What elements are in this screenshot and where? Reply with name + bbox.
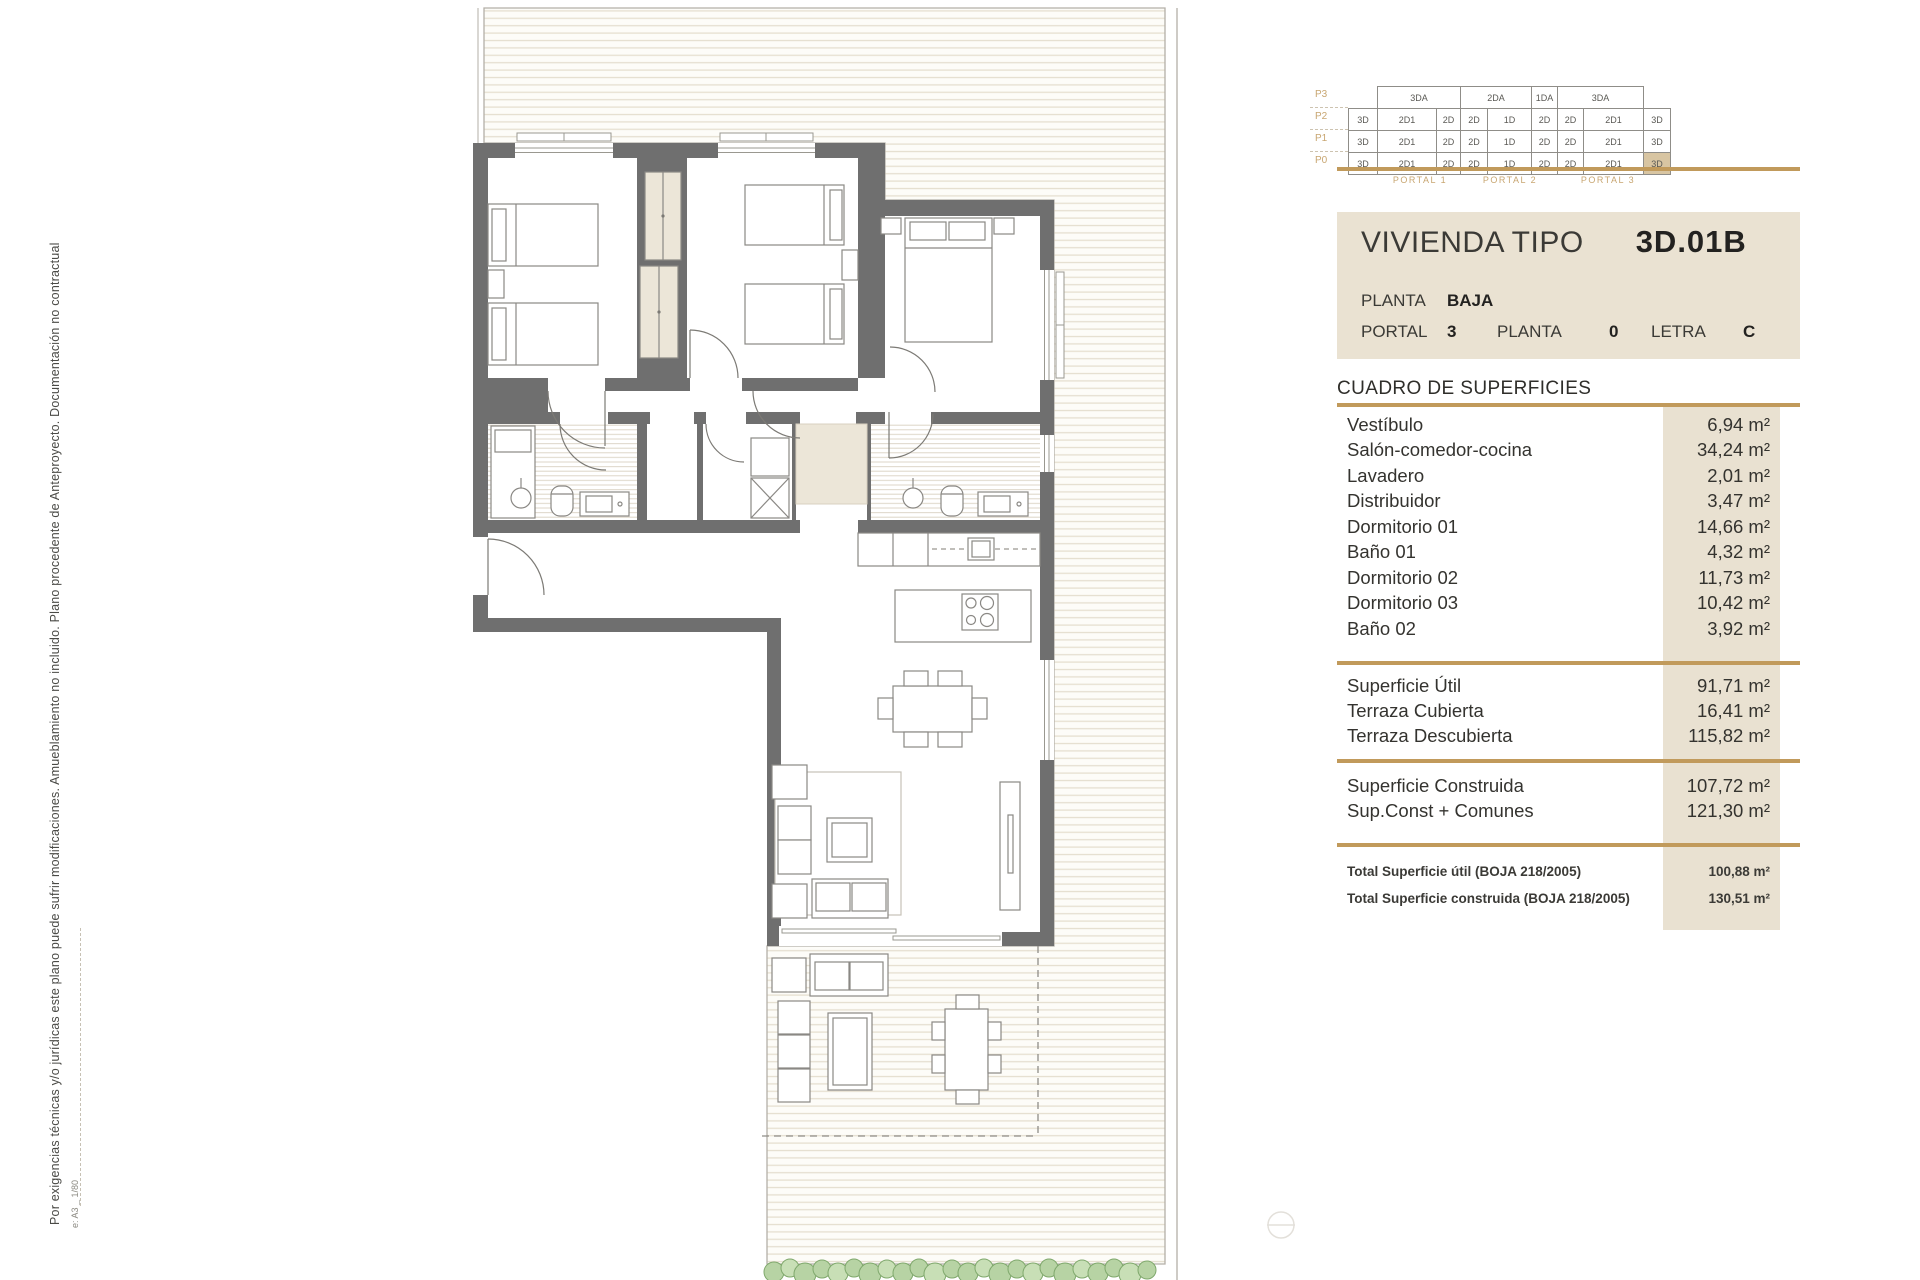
rule: [1337, 759, 1800, 763]
legal-disclaimer-note: Por exigencias técnicas y/o jurídicas es…: [48, 150, 62, 1225]
portal-row: PORTAL 3 PLANTA 0 LETRA C: [1361, 322, 1755, 342]
surface-row: Terraza Cubierta16,41 m²: [1337, 698, 1780, 724]
floor-plan-sheet: { "header": { "title": "VIVIENDA TIPO", …: [0, 0, 1920, 1280]
margin-dashed-line: [80, 928, 81, 1206]
keyplan-unit: 2D1: [1583, 130, 1644, 153]
keyplan-unit: 2D: [1557, 108, 1584, 131]
keyplan-dash: [1310, 129, 1348, 130]
summary-value: 121,30 m²: [1687, 800, 1780, 822]
surface-row: Baño 014,32 m²: [1337, 539, 1780, 565]
keyplan-floor-label: P1: [1315, 133, 1345, 144]
surface-row: Superficie Útil91,71 m²: [1337, 673, 1780, 699]
total-label: Total Superficie útil (BOJA 218/2005): [1337, 864, 1581, 879]
summary-value: 115,82 m²: [1688, 725, 1780, 747]
surface-row: Sup.Const + Comunes121,30 m²: [1337, 798, 1780, 824]
keyplan-unit: 2D: [1436, 130, 1461, 153]
room-value: 2,01 m²: [1707, 465, 1780, 487]
room-label: Dormitorio 03: [1337, 592, 1458, 614]
keyplan-unit: 2DA: [1460, 86, 1532, 109]
letra-label: LETRA: [1651, 322, 1743, 342]
surface-row: Superficie Construida107,72 m²: [1337, 773, 1780, 799]
keyplan-portal-label: PORTAL 3: [1548, 175, 1668, 185]
keyplan-dash: [1310, 107, 1348, 108]
summary-label: Superficie Útil: [1337, 675, 1461, 697]
keyplan-unit-highlighted: 3D: [1643, 152, 1671, 175]
total-value: 130,51 m²: [1708, 891, 1780, 906]
keyplan-unit: 2D: [1557, 130, 1584, 153]
rule: [1337, 403, 1800, 407]
planta2-label: PLANTA: [1497, 322, 1609, 342]
keyplan-unit: 2D1: [1377, 108, 1437, 131]
dwelling-type-row: VIVIENDA TIPO 3D.01B: [1361, 224, 1747, 260]
summary-label: Terraza Cubierta: [1337, 700, 1484, 722]
room-label: Baño 02: [1337, 618, 1416, 640]
room-label: Dormitorio 02: [1337, 567, 1458, 589]
keyplan-unit: 3D: [1643, 130, 1671, 153]
surface-row: Baño 023,92 m²: [1337, 616, 1780, 642]
room-label: Vestíbulo: [1337, 414, 1423, 436]
keyplan-unit: 3DA: [1377, 86, 1461, 109]
planta-value: BAJA: [1447, 291, 1493, 311]
summary-value: 91,71 m²: [1697, 675, 1780, 697]
room-label: Lavadero: [1337, 465, 1424, 487]
keyplan-floor-label: P2: [1315, 111, 1345, 122]
surface-row: Dormitorio 0114,66 m²: [1337, 514, 1780, 540]
room-label: Dormitorio 01: [1337, 516, 1458, 538]
surface-row: Dormitorio 0211,73 m²: [1337, 565, 1780, 591]
surface-row: Lavadero2,01 m²: [1337, 463, 1780, 489]
total-row: Total Superficie útil (BOJA 218/2005)100…: [1337, 860, 1780, 882]
planta-row: PLANTA BAJA: [1361, 291, 1493, 311]
surfaces-table-title: CUADRO DE SUPERFICIES: [1337, 378, 1591, 400]
keyplan-unit: 2D: [1460, 108, 1488, 131]
planta2-value: 0: [1609, 322, 1651, 342]
portal-label: PORTAL: [1361, 322, 1447, 342]
summary-value: 16,41 m²: [1697, 700, 1780, 722]
surface-row: Distribuidor3,47 m²: [1337, 488, 1780, 514]
rule: [1337, 661, 1800, 665]
surface-row: Dormitorio 0310,42 m²: [1337, 590, 1780, 616]
rule: [1337, 843, 1800, 847]
keyplan-unit: 2D: [1531, 108, 1558, 131]
portal-value: 3: [1447, 322, 1497, 342]
surface-row: Vestíbulo6,94 m²: [1337, 412, 1780, 438]
total-row: Total Superficie construida (BOJA 218/20…: [1337, 887, 1780, 909]
planta-label: PLANTA: [1361, 291, 1447, 311]
keyplan-unit: 2D1: [1377, 152, 1437, 175]
keyplan-unit: 2D: [1460, 152, 1488, 175]
room-value: 3,92 m²: [1707, 618, 1780, 640]
keyplan-unit: 2D1: [1583, 108, 1644, 131]
keyplan-unit: 3DA: [1557, 86, 1644, 109]
keyplan-unit: 1D: [1487, 152, 1532, 175]
room-value: 14,66 m²: [1697, 516, 1780, 538]
room-label: Baño 01: [1337, 541, 1416, 563]
dwelling-type-label: VIVIENDA TIPO: [1361, 226, 1584, 260]
surface-row: Salón-comedor-cocina34,24 m²: [1337, 437, 1780, 463]
summary-label: Sup.Const + Comunes: [1337, 800, 1534, 822]
keyplan-unit: 3D: [1348, 108, 1378, 131]
summary-label: Terraza Descubierta: [1337, 725, 1513, 747]
keyplan-unit: 2D: [1436, 108, 1461, 131]
room-value: 4,32 m²: [1707, 541, 1780, 563]
keyplan-unit: 2D: [1460, 130, 1488, 153]
keyplan-unit: 2D: [1436, 152, 1461, 175]
keyplan-ground-line: [1337, 167, 1800, 171]
keyplan-floor-label: P0: [1315, 155, 1345, 166]
room-label: Distribuidor: [1337, 490, 1441, 512]
keyplan-unit: 2D1: [1583, 152, 1644, 175]
keyplan-unit: 3D: [1348, 130, 1378, 153]
keyplan-unit: 3D: [1348, 152, 1378, 175]
keyplan-unit: 3D: [1643, 108, 1671, 131]
room-label: Salón-comedor-cocina: [1337, 439, 1532, 461]
keyplan-unit: 1DA: [1531, 86, 1558, 109]
total-label: Total Superficie construida (BOJA 218/20…: [1337, 891, 1630, 906]
keyplan-unit: 2D: [1557, 152, 1584, 175]
summary-value: 107,72 m²: [1687, 775, 1780, 797]
scale-note: e: A3 _ 1/80: [70, 1148, 80, 1228]
room-value: 34,24 m²: [1697, 439, 1780, 461]
room-value: 3,47 m²: [1707, 490, 1780, 512]
keyplan-floor-label: P3: [1315, 89, 1345, 100]
keyplan-unit: 1D: [1487, 108, 1532, 131]
dwelling-type-code: 3D.01B: [1636, 224, 1747, 260]
watermark-logo-icon: [1267, 1212, 1295, 1238]
keyplan-unit: 2D: [1531, 130, 1558, 153]
room-value: 10,42 m²: [1697, 592, 1780, 614]
keyplan-dash: [1310, 151, 1348, 152]
room-value: 11,73 m²: [1698, 567, 1780, 589]
letra-value: C: [1743, 322, 1755, 342]
keyplan-unit: 2D1: [1377, 130, 1437, 153]
keyplan-unit: 1D: [1487, 130, 1532, 153]
room-value: 6,94 m²: [1707, 414, 1780, 436]
total-value: 100,88 m²: [1708, 864, 1780, 879]
keyplan-unit: 2D: [1531, 152, 1558, 175]
summary-label: Superficie Construida: [1337, 775, 1524, 797]
surface-row: Terraza Descubierta115,82 m²: [1337, 723, 1780, 749]
